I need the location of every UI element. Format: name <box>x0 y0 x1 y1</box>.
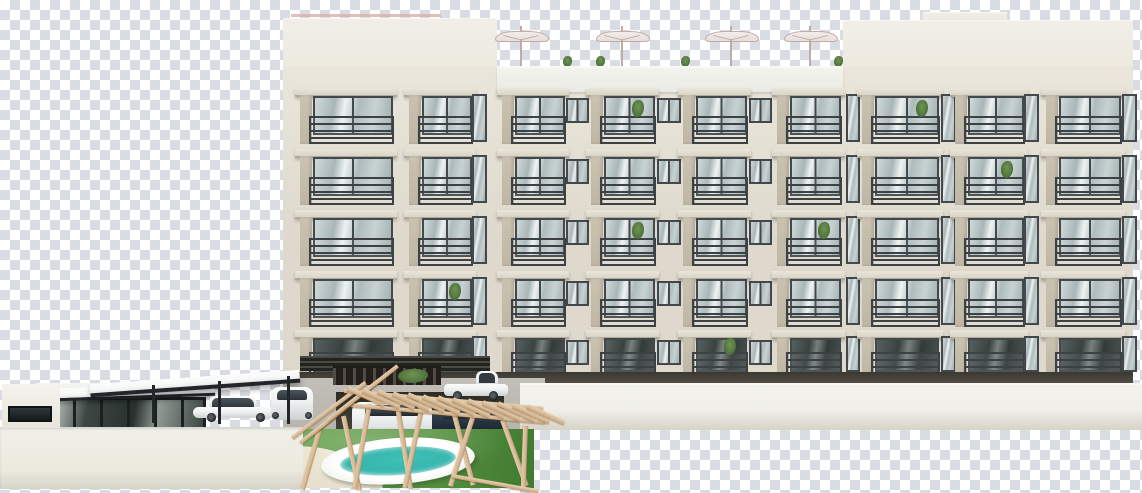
carport-post <box>152 385 155 423</box>
facade-window <box>566 340 589 365</box>
balcony-unit <box>862 330 936 374</box>
balcony-railing <box>600 238 656 266</box>
balcony-unit <box>862 88 936 144</box>
balcony-unit <box>955 330 1021 374</box>
balcony-railing <box>964 238 1025 266</box>
facade-window <box>566 98 589 123</box>
balcony-railing <box>511 238 566 266</box>
balcony-unit <box>777 271 838 327</box>
balcony-unit <box>683 271 744 327</box>
balcony-unit <box>591 88 652 144</box>
balcony-railing <box>1055 116 1122 144</box>
carport-post <box>287 376 290 424</box>
balcony-unit <box>1046 271 1118 327</box>
balcony-unit <box>1046 149 1118 205</box>
balcony-unit <box>777 149 838 205</box>
car-white-sedan <box>193 396 281 421</box>
balcony-unit <box>409 149 469 205</box>
balcony-unit <box>862 210 936 266</box>
umbrella-pole <box>809 39 811 68</box>
facade-slit-window <box>1122 94 1137 142</box>
balcony-unit <box>300 210 390 266</box>
facade-window <box>566 281 589 306</box>
facade-slit-window <box>941 155 956 203</box>
balcony-railing <box>786 299 842 327</box>
balcony-railing <box>1055 177 1122 205</box>
balcony-railing <box>511 177 566 205</box>
balcony-railing <box>309 177 394 205</box>
balcony-railing <box>871 299 940 327</box>
balcony-unit <box>300 271 390 327</box>
facade-window <box>749 98 772 123</box>
balcony-unit <box>300 149 390 205</box>
carport-post <box>218 381 221 424</box>
balcony-unit <box>591 149 652 205</box>
balcony-unit <box>502 149 562 205</box>
balcony-unit <box>777 88 838 144</box>
facade-slit-window <box>1024 336 1039 372</box>
facade-window <box>749 159 772 184</box>
umbrella-canopy <box>705 31 759 42</box>
car-wheel <box>305 412 312 419</box>
umbrella-canopy <box>495 31 549 42</box>
balcony-unit <box>955 88 1021 144</box>
balcony-railing <box>964 352 1025 374</box>
facade-slit-window <box>941 336 956 372</box>
car-window <box>277 390 307 400</box>
balcony-railing <box>511 116 566 144</box>
balcony-railing <box>418 299 473 327</box>
facade-slit-window <box>1122 216 1137 264</box>
balcony-unit <box>409 210 469 266</box>
facade-slit-window <box>846 336 860 372</box>
balcony-unit <box>300 88 390 144</box>
umbrella-pole <box>621 39 623 68</box>
facade-window <box>657 220 681 245</box>
balcony-railing <box>309 116 394 144</box>
car-wheel <box>207 413 216 422</box>
facade-slit-window <box>941 94 956 142</box>
facade-slit-window <box>846 216 860 264</box>
facade-slit-window <box>1024 216 1039 264</box>
front-wall-right <box>520 383 1142 430</box>
facade-slit-window <box>941 216 956 264</box>
balcony-railing <box>964 299 1025 327</box>
front-wall-left <box>0 427 305 489</box>
balcony-railing <box>786 352 842 374</box>
facade-window <box>749 220 772 245</box>
balcony-unit <box>1046 330 1118 374</box>
roof-umbrella <box>495 29 547 69</box>
umbrella-pole <box>730 39 732 68</box>
facade-slit-window <box>472 216 487 264</box>
balcony-unit <box>683 330 744 374</box>
umbrella-pole <box>520 39 522 68</box>
facade-slit-window <box>1122 336 1137 372</box>
balcony-railing <box>786 177 842 205</box>
facade-window <box>657 159 681 184</box>
roof-railing-accent <box>291 14 441 17</box>
umbrella-canopy <box>596 31 650 42</box>
balcony-railing <box>418 238 473 266</box>
facade-slit-window <box>472 277 487 325</box>
balcony-railing <box>1055 299 1122 327</box>
balcony-railing <box>692 177 748 205</box>
clubhouse-glass-wall <box>46 397 206 431</box>
facade-slit-window <box>846 155 860 203</box>
balcony-railing <box>600 177 656 205</box>
facade-window <box>749 281 772 306</box>
umbrella-canopy <box>784 31 838 42</box>
balcony-unit <box>1046 88 1118 144</box>
facade-window <box>749 340 772 365</box>
balcony-railing <box>600 299 656 327</box>
balcony-unit <box>955 149 1021 205</box>
balcony-unit <box>955 271 1021 327</box>
balcony-unit <box>502 88 562 144</box>
balcony-unit <box>777 210 838 266</box>
balcony-railing <box>871 352 940 374</box>
balcony-unit <box>502 271 562 327</box>
balcony-unit <box>591 210 652 266</box>
balcony-unit <box>683 149 744 205</box>
facade-window <box>657 281 681 306</box>
facade-slit-window <box>1122 155 1137 203</box>
balcony-railing <box>692 299 748 327</box>
car-white-hatchback <box>271 387 313 420</box>
balcony-railing <box>418 116 473 144</box>
balcony-railing <box>786 116 842 144</box>
balcony-railing <box>418 177 473 205</box>
facade-window <box>566 220 589 245</box>
balcony-unit <box>683 210 744 266</box>
balcony-railing <box>964 116 1025 144</box>
balcony-railing <box>600 116 656 144</box>
facade-window <box>657 98 681 123</box>
facade-slit-window <box>472 94 487 142</box>
balcony-unit <box>409 88 469 144</box>
facade-window <box>566 159 589 184</box>
balcony-unit <box>1046 210 1118 266</box>
balcony-unit <box>502 330 562 374</box>
garden <box>303 429 534 488</box>
balcony-railing <box>600 352 656 374</box>
balcony-unit <box>955 210 1021 266</box>
balcony-railing <box>964 177 1025 205</box>
balcony-railing <box>309 299 394 327</box>
balcony-railing <box>692 238 748 266</box>
balcony-railing <box>511 352 566 374</box>
balcony-unit <box>591 271 652 327</box>
balcony-railing <box>692 116 748 144</box>
car-window <box>479 373 494 383</box>
balcony-unit <box>502 210 562 266</box>
car-white-pickup <box>444 371 508 400</box>
car-wheel <box>256 413 265 422</box>
balcony-unit <box>862 271 936 327</box>
balcony-unit <box>777 330 838 374</box>
facade-slit-window <box>1024 277 1039 325</box>
balcony-railing <box>871 177 940 205</box>
balcony-railing <box>511 299 566 327</box>
roof-umbrella <box>705 29 757 69</box>
balcony-railing <box>1055 238 1122 266</box>
facade-slit-window <box>1122 277 1137 325</box>
facade-slit-window <box>472 155 487 203</box>
balcony-unit <box>591 330 652 374</box>
facade-slit-window <box>1024 94 1039 142</box>
facade-slit-window <box>846 277 860 325</box>
car-wheel <box>489 391 498 400</box>
balcony-railing <box>1055 352 1122 374</box>
transparency-checkerboard-canvas <box>0 0 1142 493</box>
facade-slit-window <box>941 277 956 325</box>
balcony-unit <box>683 88 744 144</box>
balcony-railing <box>309 238 394 266</box>
balcony-railing <box>871 116 940 144</box>
roof-umbrella <box>784 29 836 69</box>
balcony-railing <box>786 238 842 266</box>
balcony-unit <box>409 271 469 327</box>
facade-window <box>657 340 681 365</box>
balcony-railing <box>692 352 748 374</box>
facade-slit-window <box>846 94 860 142</box>
mini-parapet-window <box>8 406 52 422</box>
balcony-unit <box>862 149 936 205</box>
facade-slit-window <box>1024 155 1039 203</box>
balcony-railing <box>871 238 940 266</box>
